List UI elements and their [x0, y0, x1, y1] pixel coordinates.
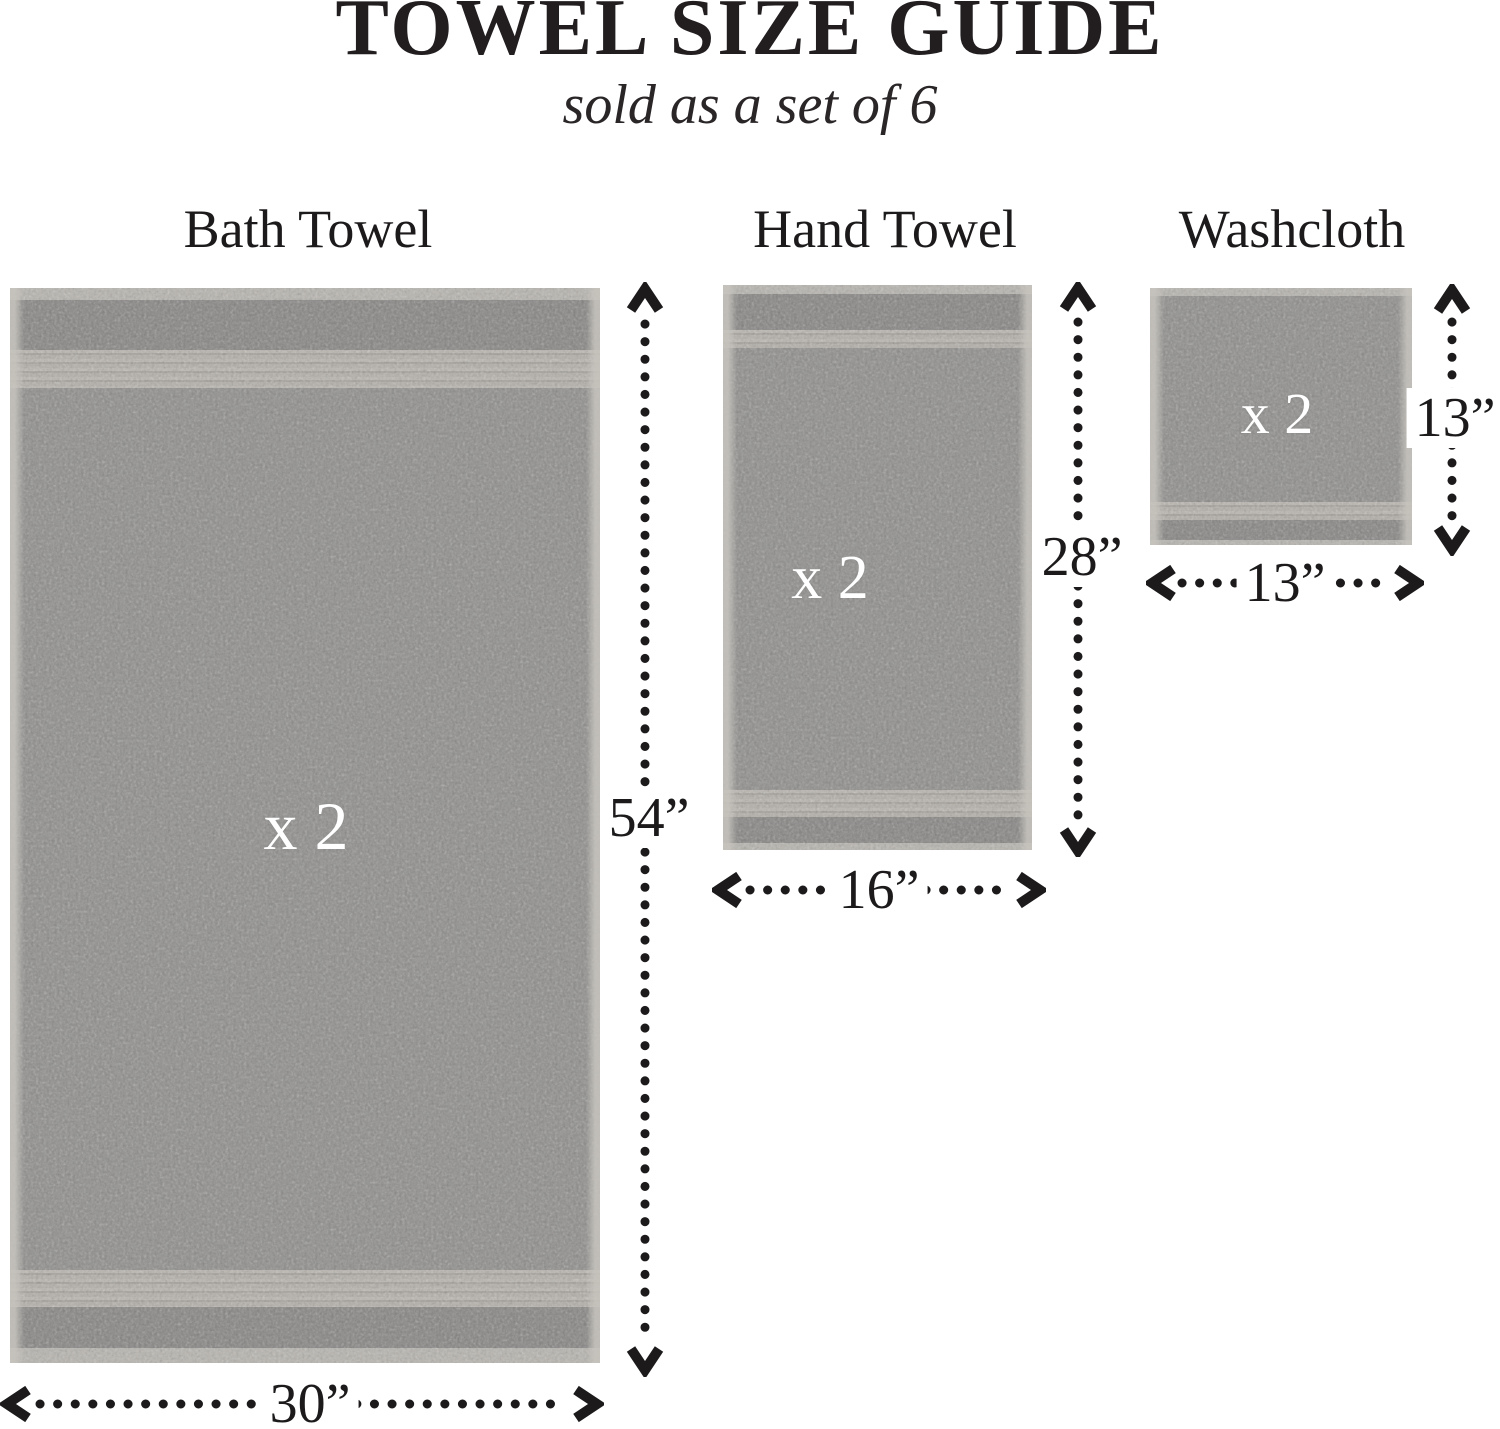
- bath-towel-image: x 2: [10, 288, 600, 1363]
- hand-towel-quantity-label: x 2: [791, 547, 869, 609]
- washcloth-width-value: 13”: [1237, 553, 1334, 613]
- bath-towel-height-value: 54”: [601, 788, 698, 848]
- hand-towel-title: Hand Towel: [753, 202, 1017, 256]
- washcloth-image: x 2: [1150, 288, 1412, 545]
- bath-towel-width-value: 30”: [262, 1374, 359, 1429]
- washcloth-title: Washcloth: [1179, 202, 1406, 256]
- towel-size-guide-page: TOWEL SIZE GUIDE sold as a set of 6 Bath…: [0, 0, 1500, 1429]
- page-subtitle: sold as a set of 6: [0, 70, 1500, 140]
- hand-towel-height-value: 28”: [1034, 527, 1131, 587]
- washcloth-quantity-label: x 2: [1241, 385, 1314, 443]
- page-title: TOWEL SIZE GUIDE: [0, 0, 1500, 68]
- hand-towel-image: x 2: [723, 285, 1032, 850]
- hand-towel-edge-highlight: [723, 285, 1032, 850]
- washcloth-height-value: 13”: [1407, 388, 1500, 448]
- hand-towel-width-value: 16”: [831, 860, 928, 920]
- bath-towel-quantity-label: x 2: [264, 792, 349, 860]
- bath-towel-title: Bath Towel: [184, 202, 433, 256]
